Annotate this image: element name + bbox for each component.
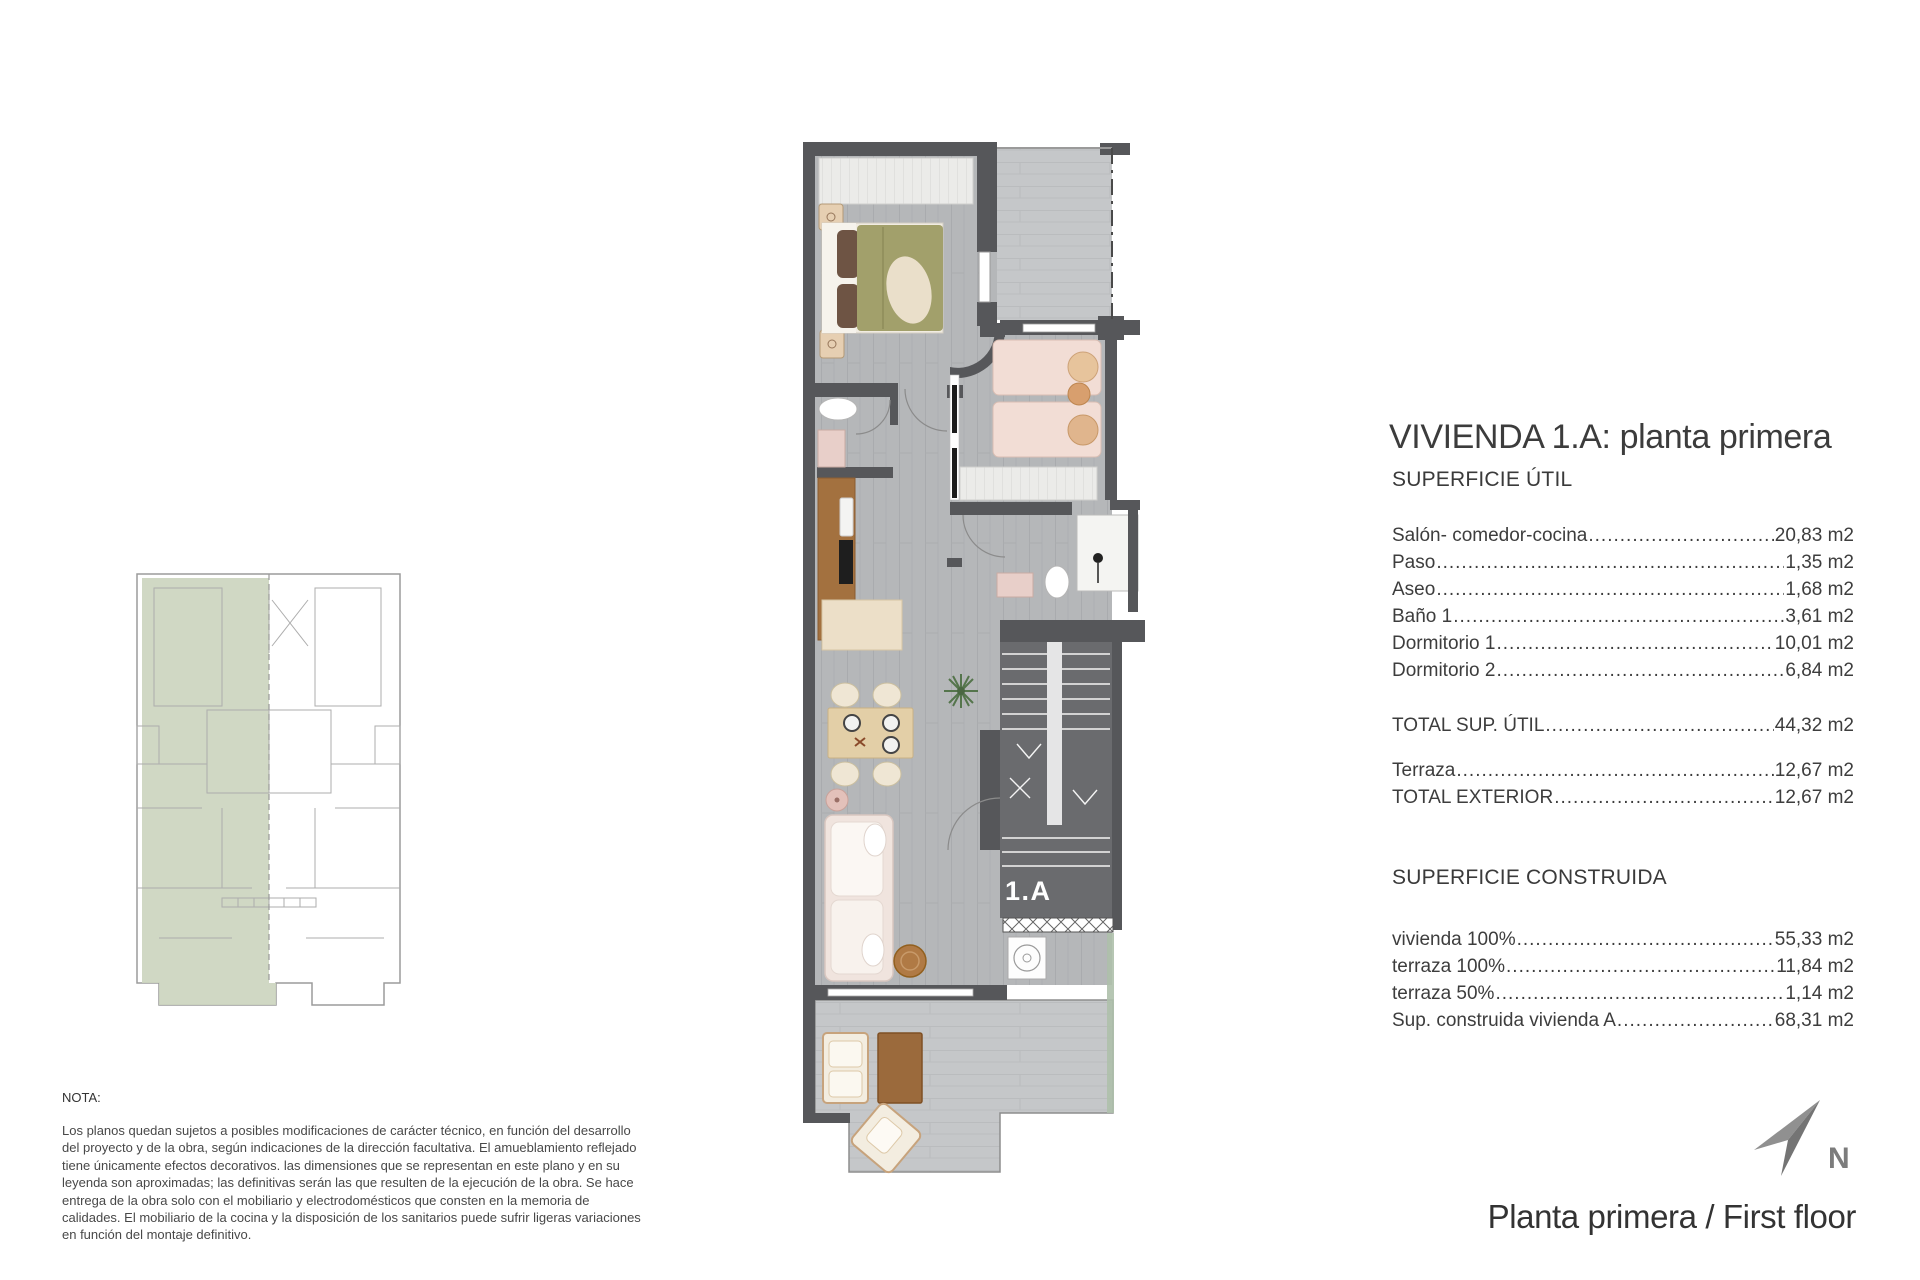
spec-value: 6,84 m2 <box>1785 657 1854 684</box>
spec-row: Aseo1,68 m2 <box>1392 576 1854 603</box>
spec-label: TOTAL EXTERIOR <box>1392 784 1553 811</box>
main-floorplan: 1.A <box>795 138 1145 1183</box>
wardrobe <box>819 158 973 204</box>
upper-terrace-floor <box>997 148 1112 320</box>
spec-value: 3,61 m2 <box>1785 603 1854 630</box>
spec-row: vivienda 100%55,33 m2 <box>1392 926 1854 953</box>
dot-leader <box>1453 603 1784 630</box>
spec-row: Paso1,35 m2 <box>1392 549 1854 576</box>
superficie-construida-list: vivienda 100%55,33 m2 terraza 100%11,84 … <box>1392 926 1854 1034</box>
spec-label: terraza 100% <box>1392 953 1505 980</box>
total-util-row-wrap: TOTAL SUP. ÚTIL44,32 m2 <box>1392 712 1854 739</box>
spec-value: 1,35 m2 <box>1785 549 1854 576</box>
superficie-util-header: SUPERFICIE ÚTIL <box>1392 468 1572 492</box>
spec-row: Salón- comedor-cocina20,83 m2 <box>1392 522 1854 549</box>
total-exterior-row: TOTAL EXTERIOR12,67 m2 <box>1392 784 1854 811</box>
north-arrow-icon <box>1752 1096 1836 1180</box>
dot-leader <box>1456 757 1773 784</box>
green-edge-strip <box>1107 933 1114 1113</box>
superficie-util-list: Salón- comedor-cocina20,83 m2 Paso1,35 m… <box>1392 522 1854 684</box>
dot-leader <box>1545 712 1773 739</box>
window-dorm2 <box>1023 324 1095 332</box>
note-header: NOTA: <box>62 1090 101 1105</box>
exterior-list: Terraza12,67 m2 TOTAL EXTERIOR12,67 m2 <box>1392 757 1854 811</box>
spec-value: 55,33 m2 <box>1775 926 1854 953</box>
spec-label: vivienda 100% <box>1392 926 1516 953</box>
shower-head <box>1093 553 1103 563</box>
spec-label: Sup. construida vivienda A <box>1392 1007 1616 1034</box>
spec-value: 44,32 m2 <box>1775 712 1854 739</box>
unit-label: 1.A <box>1005 876 1052 906</box>
spec-value: 11,84 m2 <box>1776 953 1854 980</box>
superficie-construida-header: SUPERFICIE CONSTRUIDA <box>1392 866 1667 890</box>
spec-label: Paso <box>1392 549 1435 576</box>
nightstand <box>820 330 844 358</box>
spec-row: Terraza12,67 m2 <box>1392 757 1854 784</box>
stairs: 1.A <box>1000 640 1112 918</box>
spec-value: 12,67 m2 <box>1775 757 1854 784</box>
floor-title: Planta primera / First floor <box>1488 1198 1856 1236</box>
spec-row: Dormitorio 110,01 m2 <box>1392 630 1854 657</box>
toilet-bath1 <box>1045 566 1069 598</box>
spec-label: TOTAL SUP. ÚTIL <box>1392 712 1544 739</box>
spec-value: 1,14 m2 <box>1785 980 1854 1007</box>
spec-row: terraza 50%1,14 m2 <box>1392 980 1854 1007</box>
total-util-row: TOTAL SUP. ÚTIL44,32 m2 <box>1392 712 1854 739</box>
spec-value: 10,01 m2 <box>1775 630 1854 657</box>
double-bed <box>822 223 943 333</box>
note-body: Los planos quedan sujetos a posibles mod… <box>62 1122 646 1244</box>
sink <box>818 430 845 467</box>
dot-leader <box>1588 522 1773 549</box>
dot-leader <box>1496 630 1773 657</box>
dot-leader <box>1495 980 1784 1007</box>
sink-bath1 <box>997 573 1033 597</box>
spec-row: terraza 100%11,84 m2 <box>1392 953 1854 980</box>
dot-leader <box>1554 784 1774 811</box>
entry-hatch-band <box>1003 918 1113 932</box>
terrace-table <box>878 1033 922 1103</box>
key-plan-highlight-unit <box>142 578 276 1005</box>
dot-leader <box>1517 926 1774 953</box>
key-plan <box>112 558 422 1058</box>
dot-leader <box>1496 657 1784 684</box>
spec-label: Dormitorio 2 <box>1392 657 1495 684</box>
plan-sheet: 1.A <box>0 0 1920 1280</box>
side-table <box>894 945 926 977</box>
spec-value: 1,68 m2 <box>1785 576 1854 603</box>
spec-label: Dormitorio 1 <box>1392 630 1495 657</box>
dot-leader <box>1436 576 1784 603</box>
spec-row: Baño 13,61 m2 <box>1392 603 1854 630</box>
dot-leader <box>1506 953 1775 980</box>
sliding-door-leaf <box>952 385 957 433</box>
spec-label: terraza 50% <box>1392 980 1494 1007</box>
page-title: VIVIENDA 1.A: planta primera <box>1389 418 1831 457</box>
dot-leader <box>1436 549 1784 576</box>
north-label: N <box>1828 1142 1850 1176</box>
wardrobe-dorm2 <box>960 467 1097 500</box>
spec-value: 68,31 m2 <box>1775 1007 1854 1034</box>
washing-machine <box>1008 937 1046 979</box>
spec-value: 20,83 m2 <box>1775 522 1854 549</box>
toilet <box>819 398 857 420</box>
sofa <box>825 815 893 981</box>
sliding-door-leaf-2 <box>952 448 957 498</box>
plant <box>944 674 978 708</box>
spec-row: Sup. construida vivienda A68,31 m2 <box>1392 1007 1854 1034</box>
spec-row: Dormitorio 26,84 m2 <box>1392 657 1854 684</box>
spec-label: Salón- comedor-cocina <box>1392 522 1587 549</box>
window-living-terrace <box>828 989 973 996</box>
spec-value: 12,67 m2 <box>1775 784 1854 811</box>
spec-label: Baño 1 <box>1392 603 1452 630</box>
spec-label: Aseo <box>1392 576 1435 603</box>
window-dorm1-terrace <box>979 252 990 302</box>
spec-label: Terraza <box>1392 757 1455 784</box>
dot-leader <box>1617 1007 1774 1034</box>
